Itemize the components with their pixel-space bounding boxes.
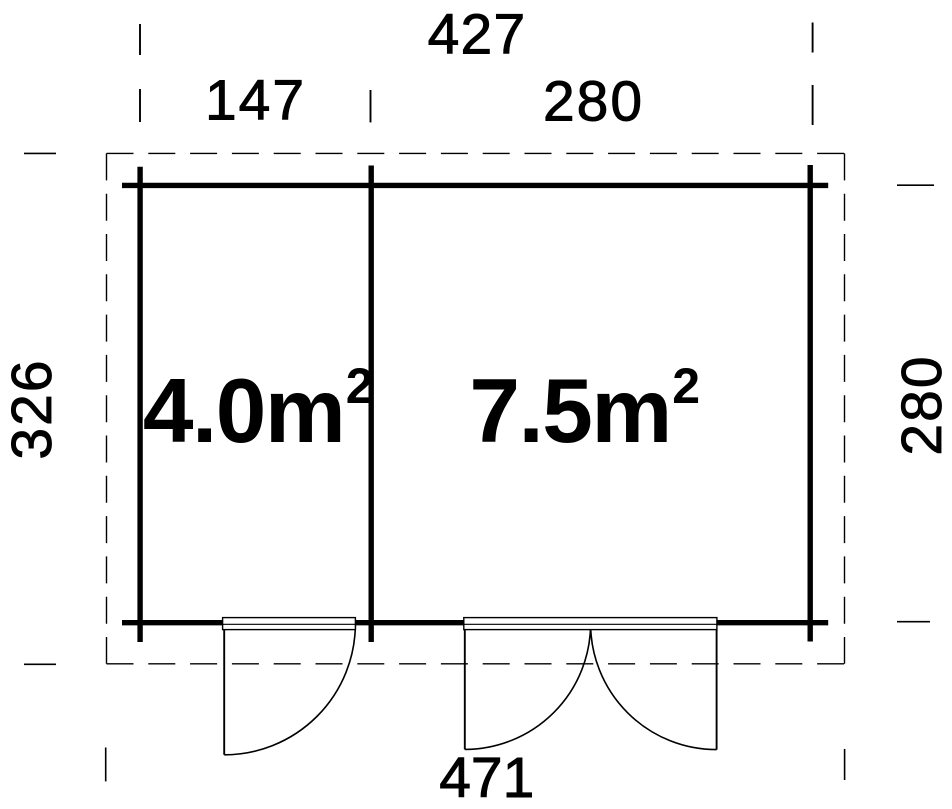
svg-text:7.5m2: 7.5m2 [469, 358, 698, 462]
svg-text:471: 471 [439, 746, 534, 809]
svg-text:326: 326 [0, 358, 64, 459]
svg-text:427: 427 [428, 3, 527, 67]
svg-text:147: 147 [205, 69, 306, 133]
svg-text:4.0m2: 4.0m2 [143, 358, 372, 462]
svg-text:280: 280 [890, 354, 952, 455]
svg-text:280: 280 [543, 70, 644, 134]
